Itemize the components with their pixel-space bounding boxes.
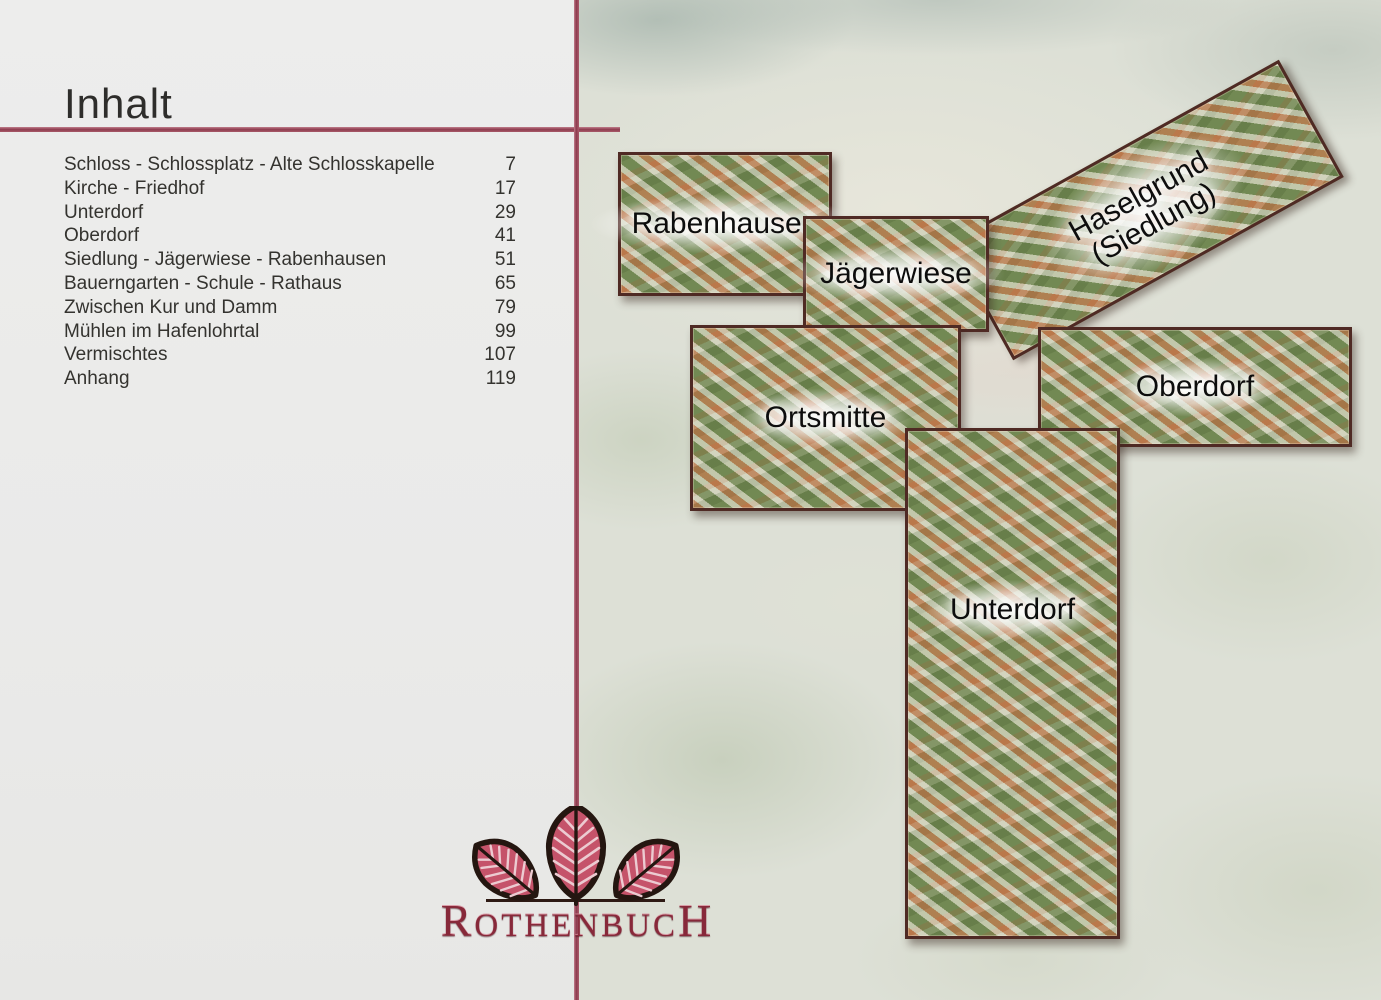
wordmark-final: H xyxy=(678,895,714,946)
toc-entry-label: Vermischtes xyxy=(64,343,167,367)
toc-row: Unterdorf 29 xyxy=(64,201,516,225)
page-title: Inhalt xyxy=(64,80,173,128)
toc-row: Anhang 119 xyxy=(64,367,516,391)
toc-row: Siedlung - Jägerwiese - Rabenhausen 51 xyxy=(64,248,516,272)
toc-entry-label: Mühlen im Hafenlohrtal xyxy=(64,320,259,344)
toc-entry-label: Unterdorf xyxy=(64,201,143,225)
toc-entry-page: 119 xyxy=(472,367,516,391)
toc-entry-label: Kirche - Friedhof xyxy=(64,177,204,201)
table-of-contents: Schloss - Schlossplatz - Alte Schlosskap… xyxy=(64,153,516,391)
map-region-label: Rabenhausen xyxy=(632,208,819,240)
toc-row: Zwischen Kur und Damm 79 xyxy=(64,296,516,320)
toc-entry-label: Schloss - Schlossplatz - Alte Schlosskap… xyxy=(64,153,435,177)
map-region-unterdorf: Unterdorf xyxy=(905,428,1120,939)
toc-row: Vermischtes 107 xyxy=(64,343,516,367)
toc-entry-page: 99 xyxy=(472,320,516,344)
toc-entry-page: 65 xyxy=(472,272,516,296)
wordmark-middle: OTHENBUC xyxy=(474,908,678,944)
rothenbuch-wordmark: ROTHENBUCH xyxy=(430,898,725,944)
toc-entry-label: Anhang xyxy=(64,367,130,391)
map-region-label: Ortsmitte xyxy=(765,402,887,434)
title-rule xyxy=(0,127,620,132)
map-region-label: Oberdorf xyxy=(1136,371,1254,403)
toc-row: Schloss - Schlossplatz - Alte Schlosskap… xyxy=(64,153,516,177)
toc-entry-page: 41 xyxy=(472,224,516,248)
map-region-label: Unterdorf xyxy=(950,594,1075,626)
toc-row: Kirche - Friedhof 17 xyxy=(64,177,516,201)
toc-entry-page: 51 xyxy=(472,248,516,272)
beech-leaves-icon xyxy=(462,806,690,906)
map-region-jaegerwiese: Jägerwiese xyxy=(803,216,989,332)
toc-entry-page: 17 xyxy=(472,177,516,201)
toc-entry-page: 79 xyxy=(472,296,516,320)
toc-entry-label: Bauerngarten - Schule - Rathaus xyxy=(64,272,342,296)
toc-entry-page: 29 xyxy=(472,201,516,225)
toc-entry-label: Oberdorf xyxy=(64,224,139,248)
map-region-label: Jägerwiese xyxy=(820,258,972,290)
toc-entry-page: 7 xyxy=(472,153,516,177)
toc-row: Oberdorf 41 xyxy=(64,224,516,248)
wordmark-initial: R xyxy=(441,895,475,946)
toc-entry-page: 107 xyxy=(472,343,516,367)
toc-entry-label: Zwischen Kur und Damm xyxy=(64,296,277,320)
book-contents-page: Inhalt Schloss - Schlossplatz - Alte Sch… xyxy=(0,0,1381,1000)
toc-entry-label: Siedlung - Jägerwiese - Rabenhausen xyxy=(64,248,386,272)
toc-row: Bauerngarten - Schule - Rathaus 65 xyxy=(64,272,516,296)
toc-row: Mühlen im Hafenlohrtal 99 xyxy=(64,320,516,344)
